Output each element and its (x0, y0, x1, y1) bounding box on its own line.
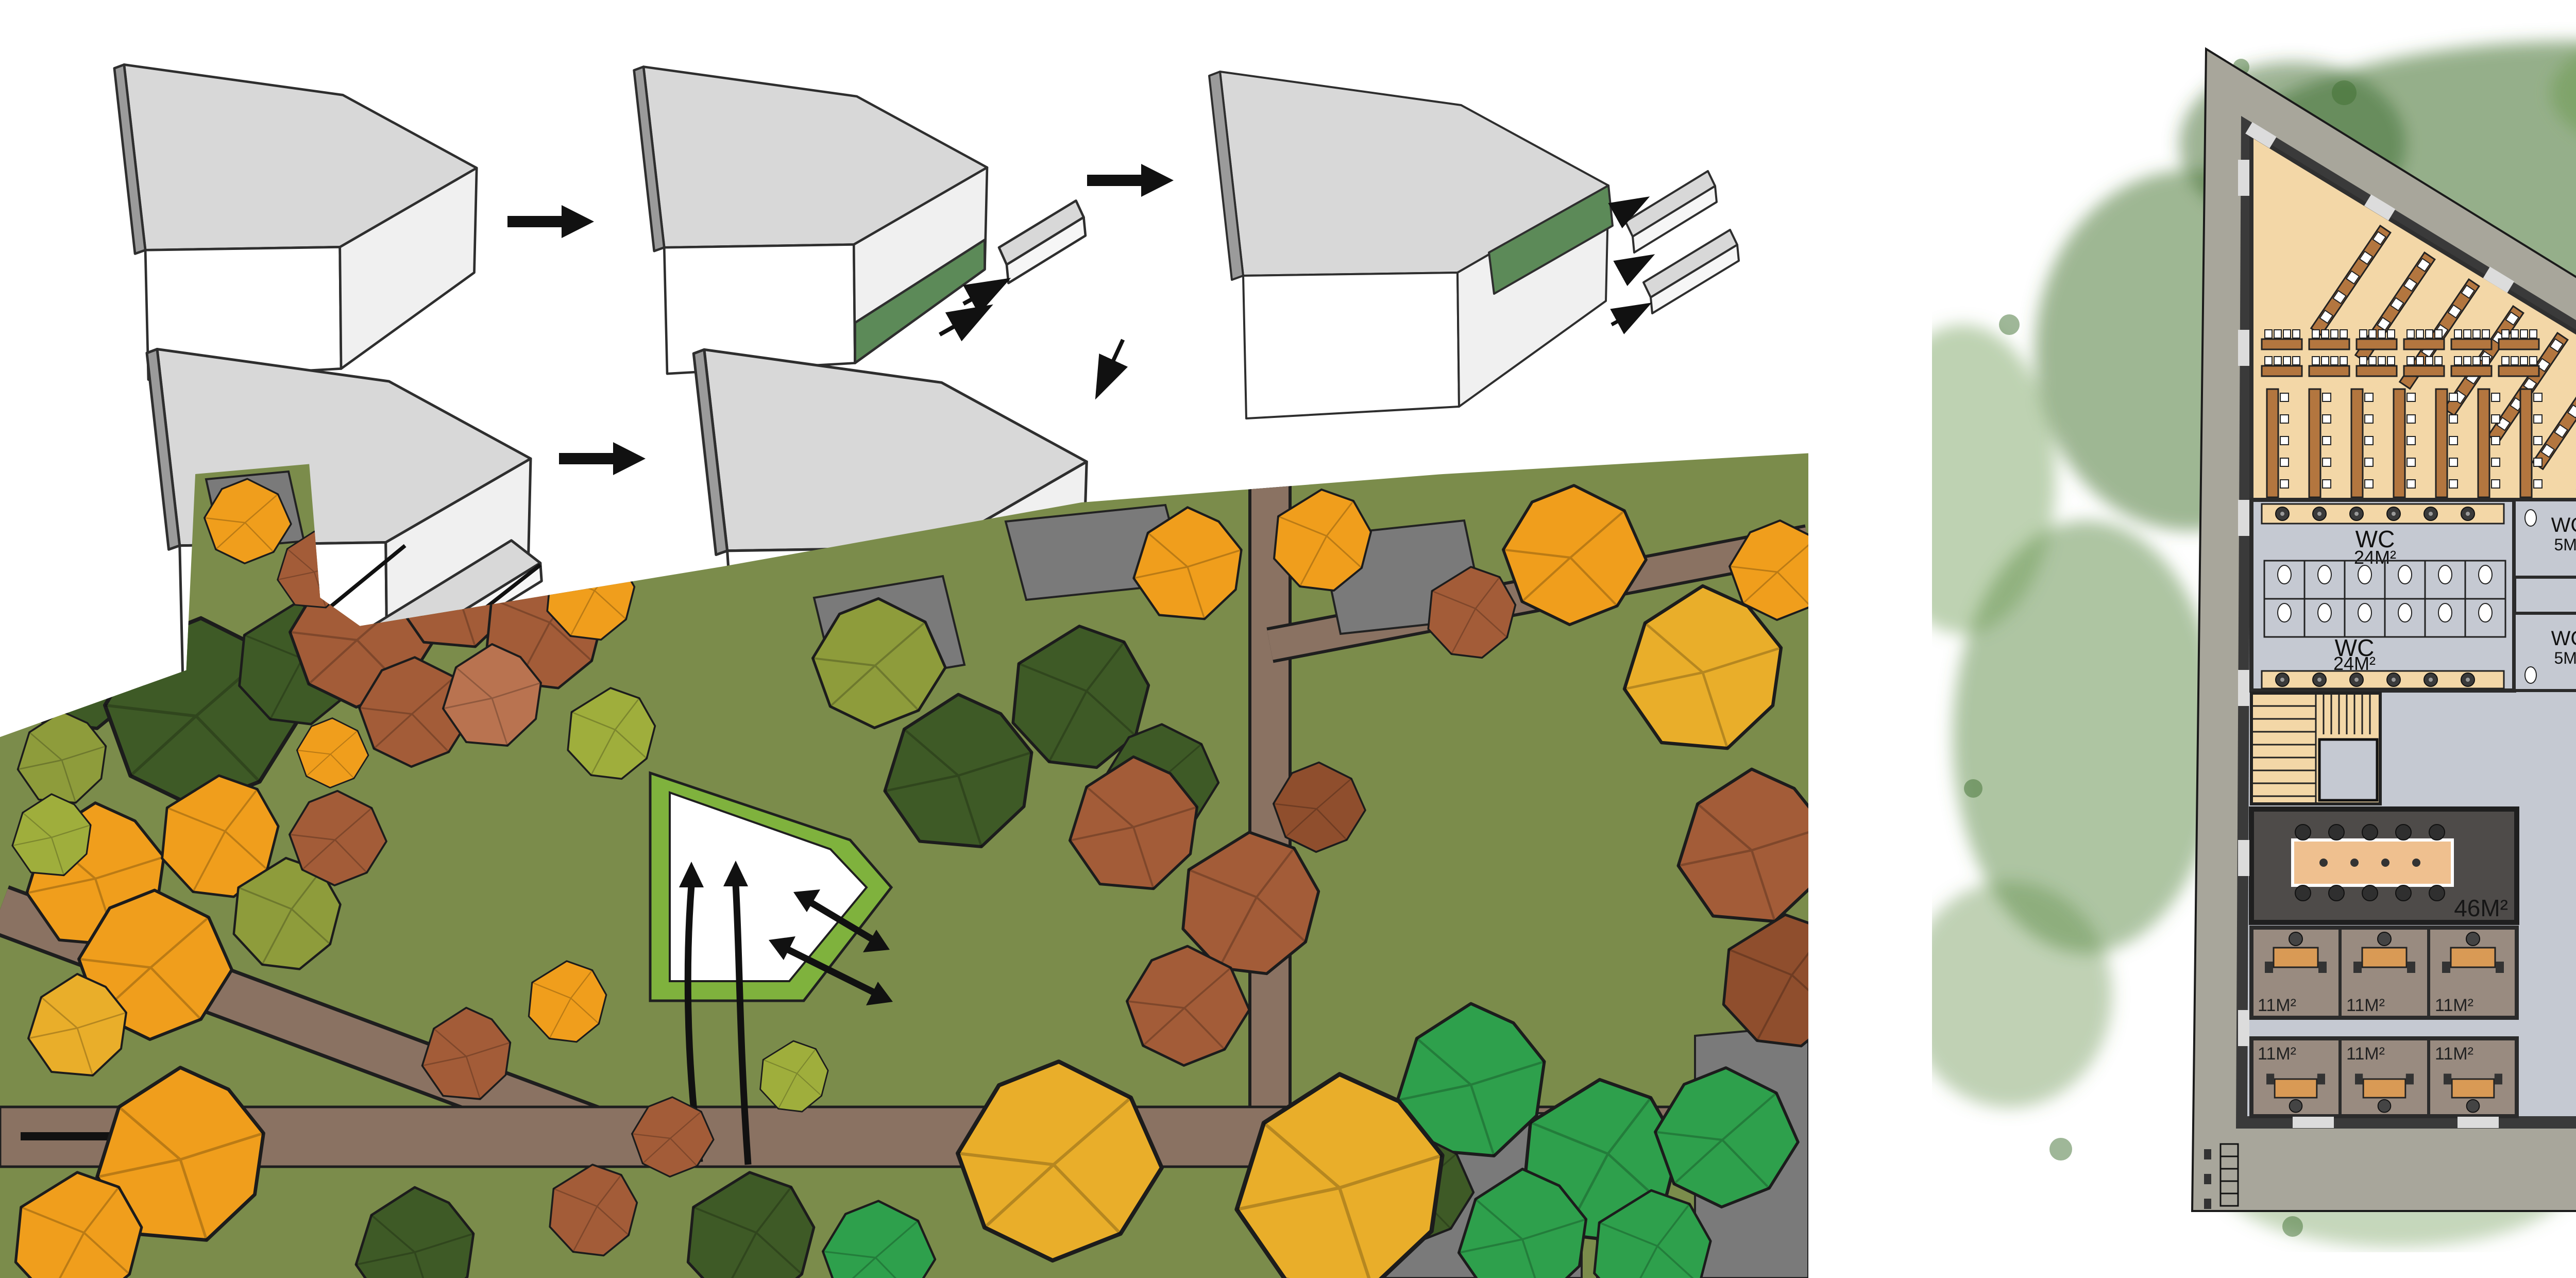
wc-area: 24M² (2354, 547, 2396, 568)
presentation-board: Lecture Hall 156M² WC 24M² WC 24M² (0, 0, 2576, 1278)
massing-step-3 (1209, 72, 1739, 418)
office-area: 11M² (2435, 996, 2473, 1015)
massing-step-2 (634, 67, 1086, 374)
stairs (2251, 693, 2380, 804)
office-area: 11M² (2258, 996, 2296, 1015)
elevator (2319, 739, 2377, 800)
offices-row-2: 11M² 11M² 11M² (2251, 1038, 2517, 1116)
room-meeting: 46M² (2251, 809, 2517, 922)
process-arrow-icon (559, 442, 646, 475)
wc-small-label: WC (2551, 627, 2576, 650)
massing-step-1 (114, 64, 477, 379)
office-area: 11M² (2346, 1044, 2385, 1064)
floor-plan: Lecture Hall 156M² WC 24M² WC 24M² (1932, 15, 2576, 1252)
meeting-room-area: 46M² (2454, 895, 2508, 921)
wc-small-area: 5M² (2554, 535, 2576, 554)
wc-small-label: WC (2551, 514, 2576, 536)
conference-table (2293, 840, 2452, 885)
office-area: 11M² (2346, 996, 2385, 1015)
site-plan-canvas (0, 443, 1808, 1278)
wc-small-area: 5M² (2554, 649, 2576, 667)
process-arrow-icon (1087, 164, 1174, 197)
process-arrow-icon (507, 205, 594, 238)
office-area: 11M² (2258, 1044, 2296, 1064)
site-plan (0, 443, 1808, 1278)
office-area: 11M² (2435, 1044, 2473, 1064)
offices-row-1: 11M² 11M² 11M² (2251, 928, 2517, 1018)
